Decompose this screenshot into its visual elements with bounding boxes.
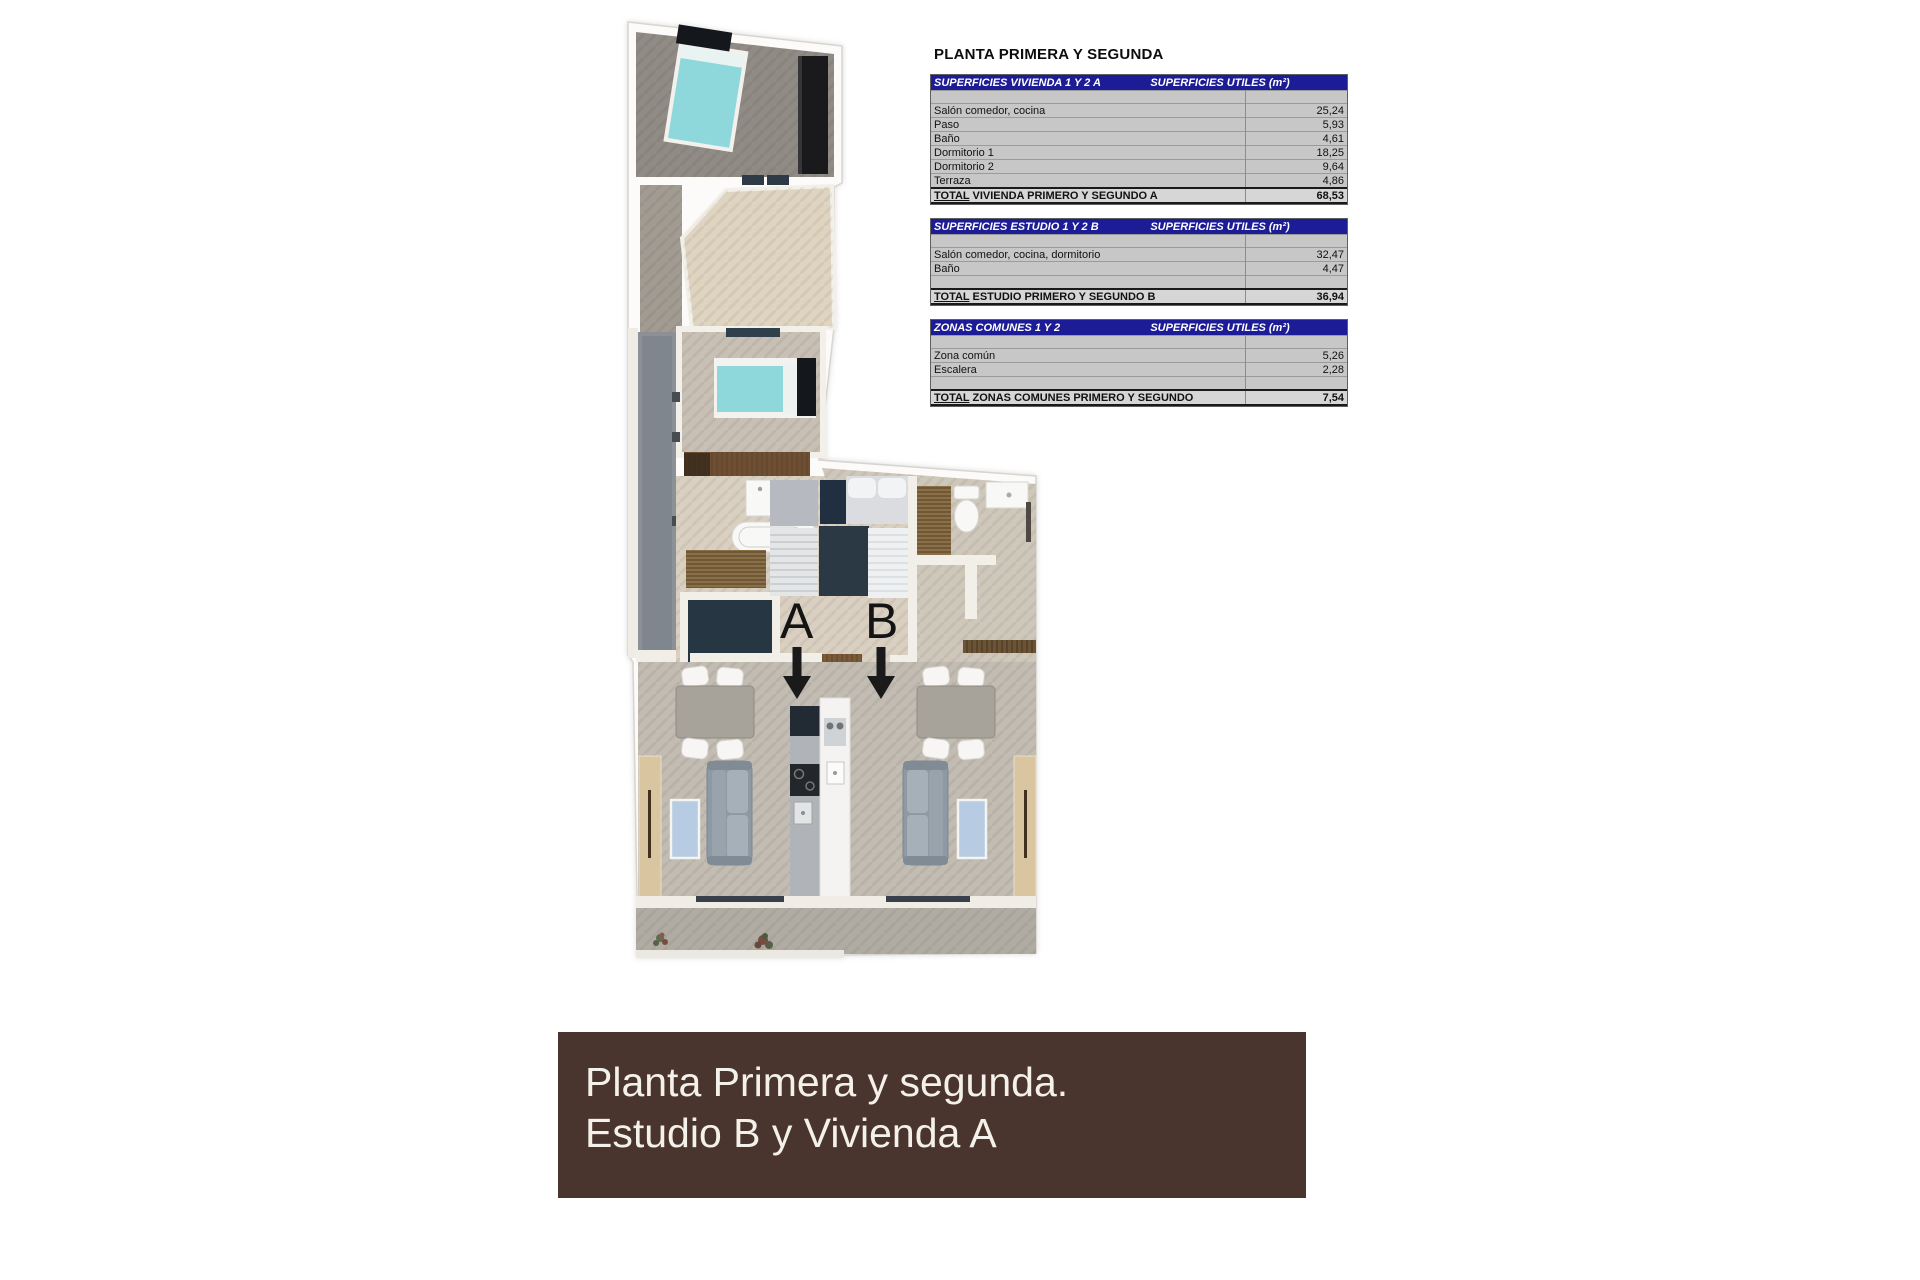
unit-a-label: A	[780, 593, 814, 649]
elevator	[819, 526, 869, 596]
bottom-terrace	[636, 896, 1036, 958]
banner-line-2: Estudio B y Vivienda A	[585, 1108, 1296, 1159]
total-value: 7,54	[1245, 390, 1347, 405]
wardrobe-2	[684, 452, 810, 478]
table-header-right: SUPERFICIES UTILES (m²)	[1150, 77, 1347, 89]
stair-core	[770, 476, 910, 598]
toilet	[954, 486, 979, 532]
window-strip-b	[1014, 756, 1036, 898]
window-strip-a	[639, 756, 661, 898]
page: PLANTA PRIMERA Y SEGUNDA SUPERFICIES VIV…	[0, 0, 1920, 1280]
cooktop	[790, 764, 820, 796]
louver-panel-b	[917, 486, 951, 564]
unit-b-label: B	[865, 593, 898, 649]
stair-flight-left	[770, 528, 818, 596]
floor-plan: A B	[620, 10, 1050, 965]
banner-line-1: Planta Primera y segunda.	[585, 1057, 1296, 1108]
title-banner: Planta Primera y segunda. Estudio B y Vi…	[558, 1032, 1306, 1198]
paso-strip	[640, 185, 682, 332]
sink-a	[746, 480, 773, 516]
table-header-right: SUPERFICIES UTILES (m²)	[1150, 322, 1347, 334]
total-value: 36,94	[1245, 289, 1347, 304]
fridge	[790, 706, 820, 736]
rug-b	[958, 800, 986, 858]
total-value: 68,53	[1245, 188, 1347, 203]
table-header-right: SUPERFICIES UTILES (m²)	[1150, 221, 1347, 233]
sofa-b	[903, 761, 948, 865]
single-bed	[714, 358, 816, 418]
dining-table-b	[917, 686, 995, 738]
dining-table-a	[676, 686, 754, 738]
rug-a	[671, 800, 699, 858]
sink-b	[986, 482, 1028, 508]
sofa-a	[707, 761, 752, 865]
slat-bench	[963, 640, 1036, 653]
louver-panel-a	[686, 550, 766, 588]
bedroom-2	[676, 326, 826, 478]
patio-strip	[628, 328, 680, 662]
wardrobe-1	[798, 56, 828, 174]
kitchen	[790, 698, 850, 898]
